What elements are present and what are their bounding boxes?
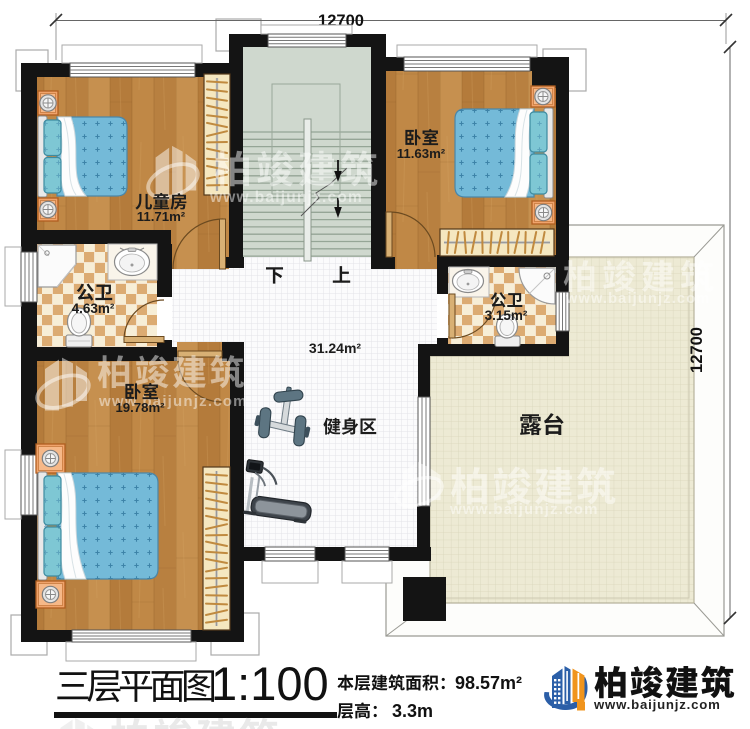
svg-text:11.63m²: 11.63m² (397, 146, 446, 161)
svg-text:3.3m: 3.3m (392, 701, 433, 721)
svg-text:11.71m²: 11.71m² (137, 209, 186, 224)
svg-text:1:100: 1:100 (211, 657, 329, 710)
svg-text:31.24m²: 31.24m² (309, 340, 361, 356)
svg-text:3.15m²: 3.15m² (485, 308, 528, 323)
svg-text:www.baijunjz.com: www.baijunjz.com (593, 697, 721, 712)
svg-text:12700: 12700 (688, 327, 706, 373)
svg-text:www.baijunjz.com: www.baijunjz.com (209, 189, 363, 206)
svg-text:www.baijunjz.com: www.baijunjz.com (565, 291, 710, 307)
svg-text:www.baijunjz.com: www.baijunjz.com (449, 501, 599, 518)
svg-text:4.63m²: 4.63m² (72, 301, 115, 316)
svg-text:98.57m²: 98.57m² (455, 673, 522, 693)
svg-text:19.78m²: 19.78m² (115, 400, 165, 415)
